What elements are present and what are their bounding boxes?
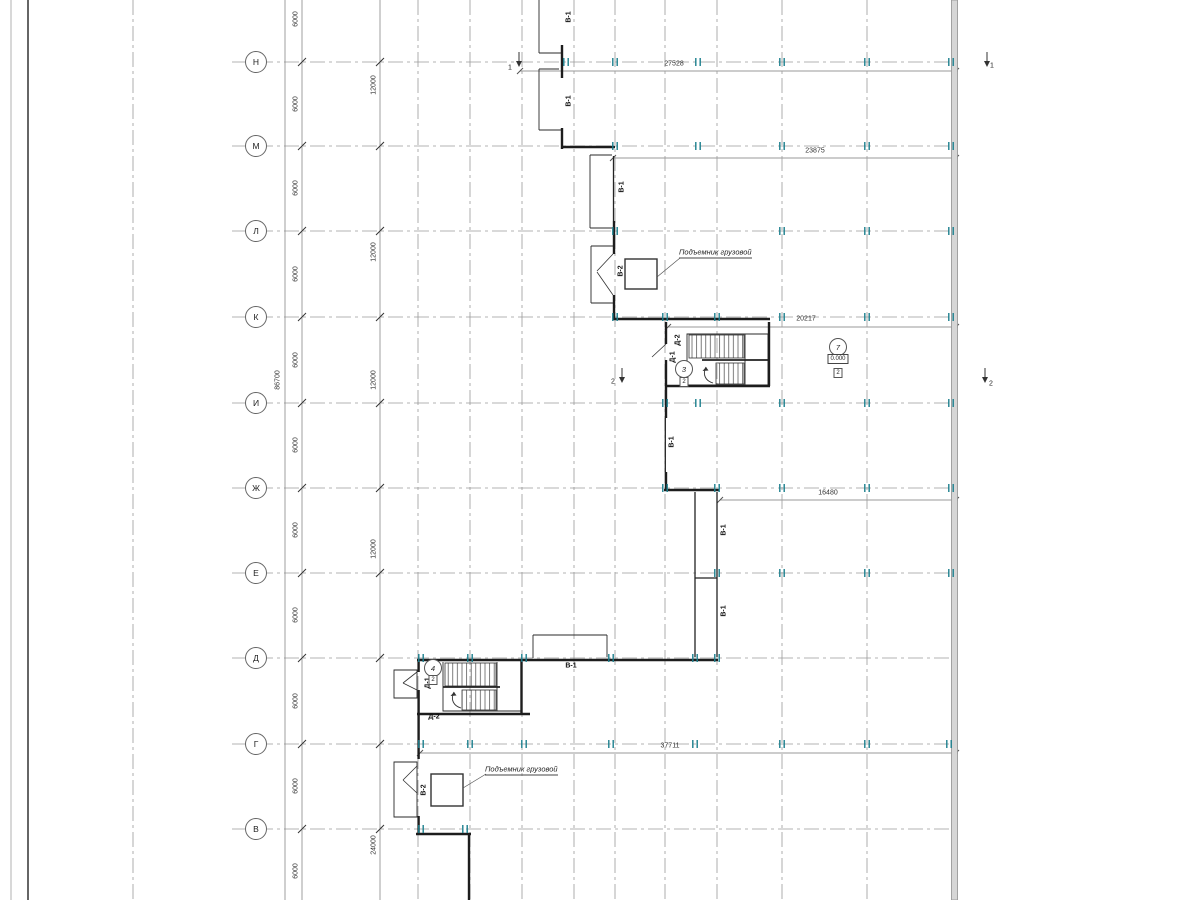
walls-thin	[394, 0, 768, 817]
grid-row-marker: М	[245, 135, 267, 157]
dim-total-height: 86700	[275, 370, 282, 389]
floor-type-value: 2	[836, 370, 839, 376]
dim-double-bay: 12000	[371, 370, 378, 389]
dim-line-end-ticks	[417, 68, 959, 756]
grid-row-marker: К	[245, 306, 267, 328]
window-mark-v1: В-1	[721, 605, 728, 616]
dim-bay: 6000	[293, 863, 300, 879]
dim-bay: 6000	[293, 352, 300, 368]
dim-row-g: 37711	[661, 743, 680, 750]
grid-row-marker: Ж	[245, 477, 267, 499]
floor-type-box: 2	[834, 368, 843, 378]
dim-double-bay: 12000	[371, 242, 378, 261]
grid-row-label: Н	[253, 57, 259, 67]
grid-row-marker: Д	[245, 647, 267, 669]
hoist-box-top	[625, 259, 657, 289]
dim-bay: 6000	[293, 522, 300, 538]
dim-row-zh: 16480	[818, 490, 837, 497]
grid-row-label: И	[253, 398, 259, 408]
floor-type-value: 2	[682, 379, 685, 385]
grid-row-marker: Г	[245, 733, 267, 755]
dim-bay: 6000	[293, 96, 300, 112]
window-mark-v1: В-1	[669, 436, 676, 447]
window-mark-v1: В-1	[721, 524, 728, 535]
elevation-mark: 0.000	[827, 354, 848, 364]
grid-row-label: Л	[253, 226, 259, 236]
dim-bay: 6000	[293, 437, 300, 453]
grid-row-label: Д	[253, 653, 259, 663]
elevation-value: 0.000	[830, 356, 845, 362]
section-label-1: 1	[990, 63, 994, 70]
room-number: 4	[431, 664, 435, 673]
dim-chain-ticks	[298, 58, 384, 833]
grid-row-label: М	[252, 141, 259, 151]
hoist-box-bottom	[431, 774, 463, 806]
window-mark-v1: В-1	[565, 663, 576, 670]
grid-row-label: Ж	[252, 483, 260, 493]
floor-type-value: 2	[431, 677, 434, 683]
door-mark-d2: Д-2	[675, 334, 682, 345]
grid-row-marker: В	[245, 818, 267, 840]
dim-bay: 6000	[293, 778, 300, 794]
dim-double-bay: 12000	[371, 539, 378, 558]
room-number: 3	[682, 365, 686, 374]
dim-row-m: 23875	[805, 148, 824, 155]
dim-lines-horizontal	[420, 71, 958, 753]
dim-bay: 6000	[293, 180, 300, 196]
dim-bottom-run: 24000	[371, 835, 378, 854]
grid-row-marker: Л	[245, 220, 267, 242]
dim-bay: 6000	[293, 607, 300, 623]
floor-type-box: 2	[429, 675, 438, 685]
grid-row-label: Е	[253, 568, 259, 578]
dim-double-bay: 12000	[371, 75, 378, 94]
section-cut-marks	[516, 52, 990, 383]
section-label-2: 2	[611, 379, 615, 386]
dim-row-n: 27528	[664, 61, 683, 68]
door-mark-d2: Д-2	[428, 714, 439, 721]
window-mark-v1: В-1	[566, 95, 573, 106]
grid-row-marker: Н	[245, 51, 267, 73]
section-label-1: 1	[508, 65, 512, 72]
grid-intersection-ticks	[419, 58, 953, 833]
grid-row-marker: Е	[245, 562, 267, 584]
grid-row-marker: И	[245, 392, 267, 414]
grid-row-label: К	[254, 312, 259, 322]
stair-flights	[443, 335, 768, 710]
door-mark-d1: Д-1	[670, 351, 677, 362]
grid-row-label: В	[253, 824, 259, 834]
door-leaves	[403, 254, 666, 793]
section-label-2: 2	[989, 381, 993, 388]
floor-plan-sheet: Н М Л К И Ж Е Д Г В 27528 23875 20217 16…	[0, 0, 1200, 900]
window-mark-v1: В-1	[566, 11, 573, 22]
dim-bay: 6000	[293, 11, 300, 27]
dim-bay: 6000	[293, 693, 300, 709]
window-mark-v2: В-2	[421, 784, 428, 795]
room-number-circle: 3	[675, 360, 693, 378]
window-mark-v2: В-2	[618, 265, 625, 276]
plan-canvas	[0, 0, 1200, 900]
hoist-note: Подъемник грузовой	[679, 248, 752, 259]
dim-bay: 6000	[293, 266, 300, 282]
room-number: 7	[836, 343, 840, 352]
east-wall-band	[952, 0, 958, 900]
floor-type-box: 2	[680, 377, 689, 387]
hoist-note: Подъемник грузовой	[485, 765, 558, 776]
grid-row-label: Г	[254, 739, 259, 749]
window-mark-v1: В-1	[619, 181, 626, 192]
dim-row-k: 20217	[796, 316, 815, 323]
